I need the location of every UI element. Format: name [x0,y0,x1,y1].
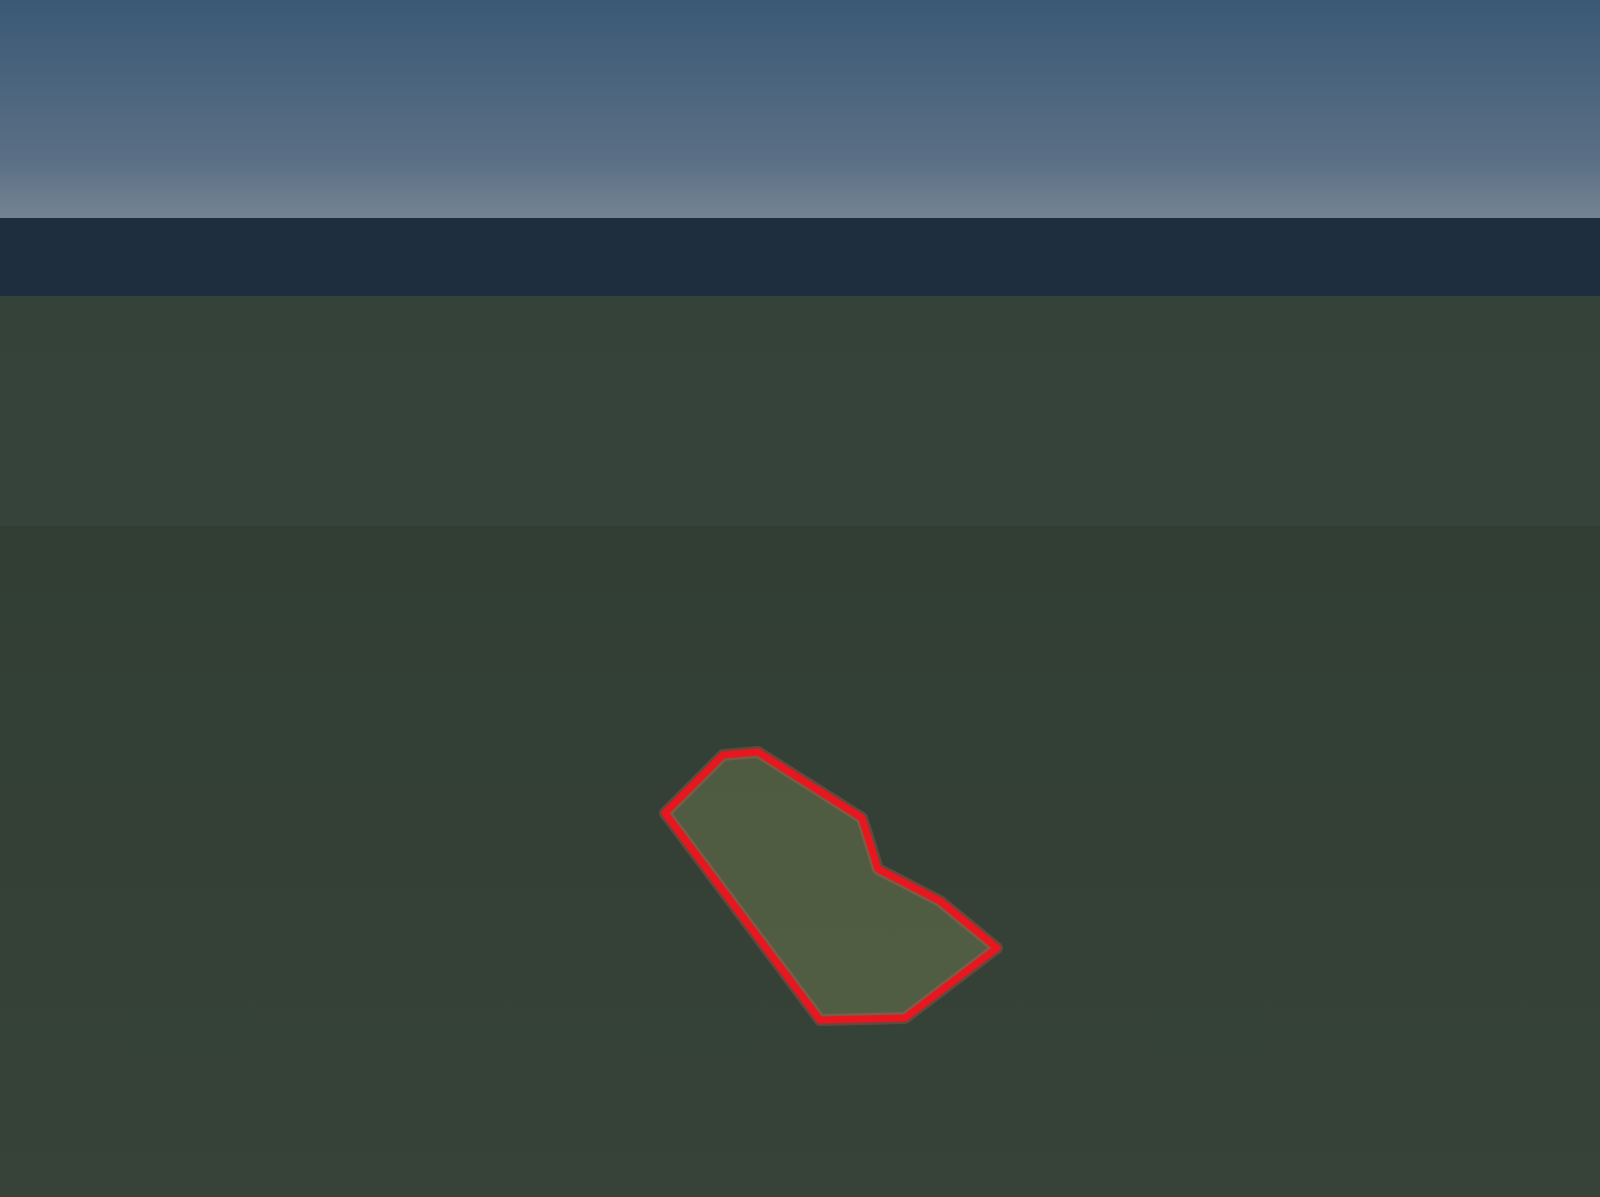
dark-overlay [0,0,1600,1197]
aerial-photo-canvas [0,0,1600,1197]
aerial-listing-photo [0,0,1600,1197]
